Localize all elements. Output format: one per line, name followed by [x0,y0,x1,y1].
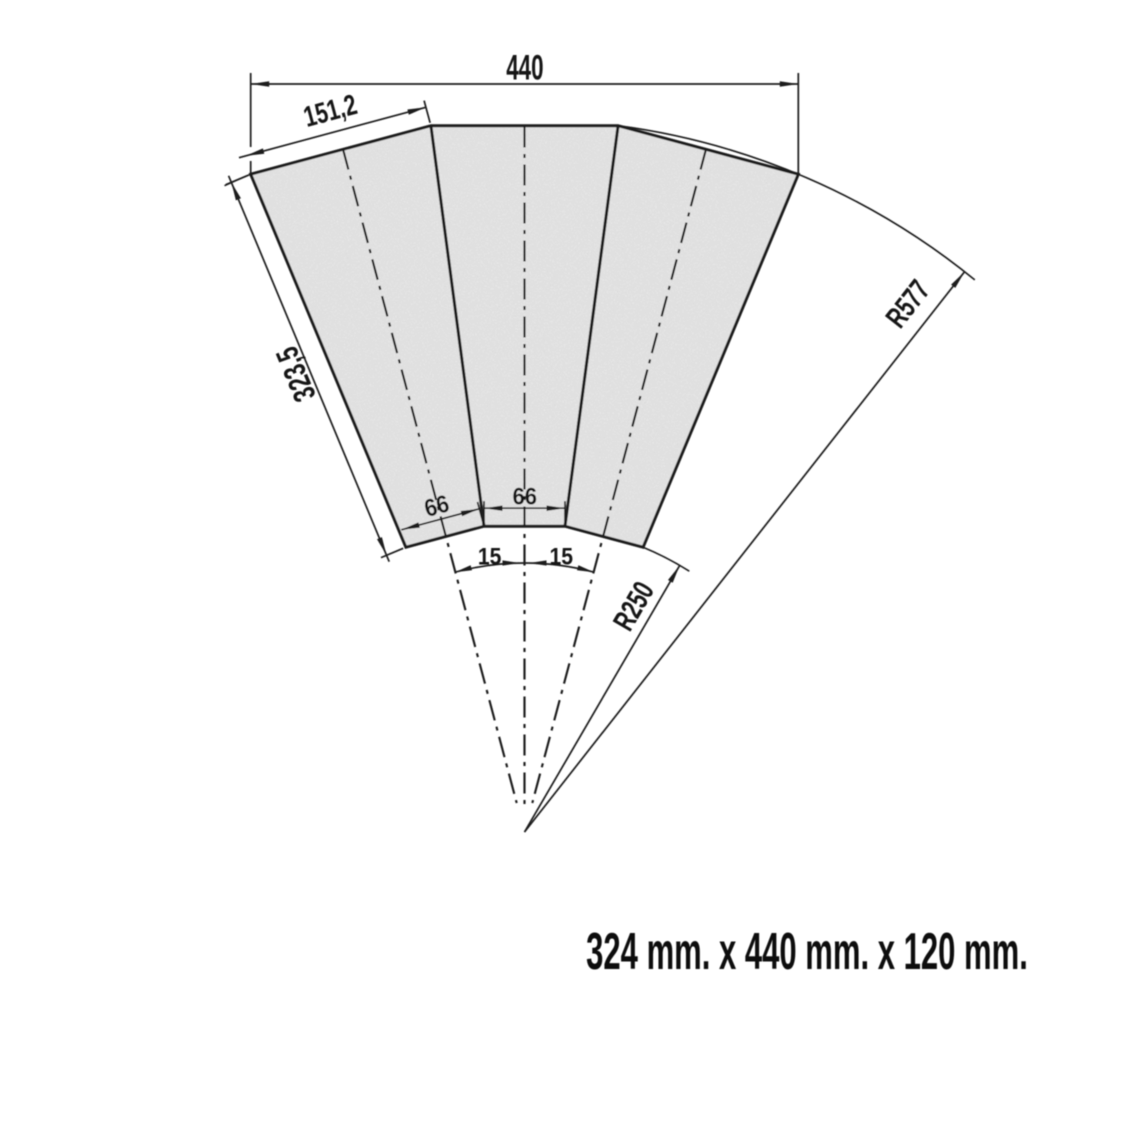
svg-text:15: 15 [549,543,572,570]
svg-text:15: 15 [478,543,501,570]
svg-text:66: 66 [513,482,538,509]
svg-text:440: 440 [506,48,543,87]
svg-text:324 mm. x 440 mm. x 120 mm.: 324 mm. x 440 mm. x 120 mm. [586,923,1028,981]
